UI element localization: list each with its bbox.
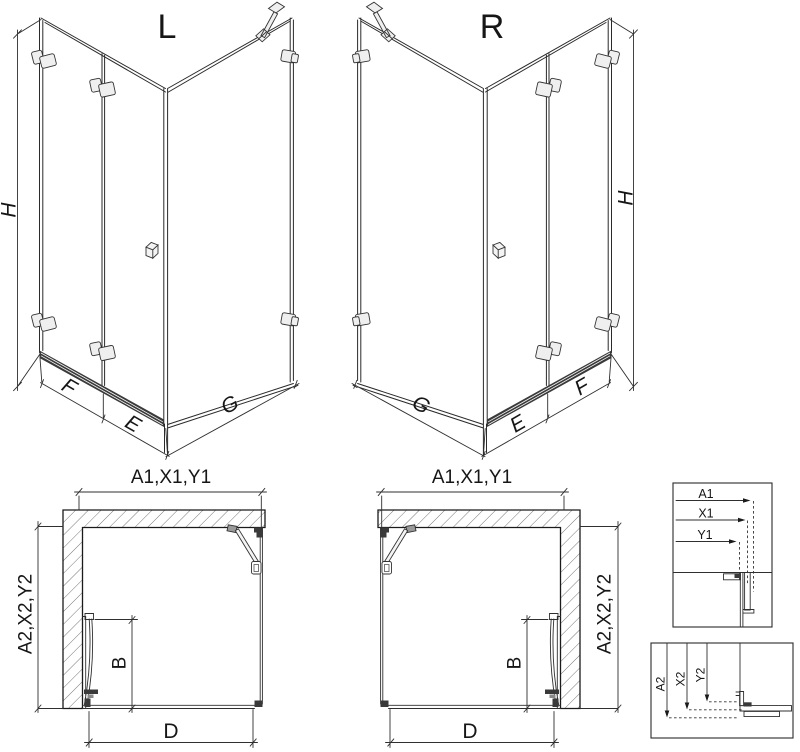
detail-dim-x2: X2 (674, 671, 688, 686)
detail-box-horizontal: A1 X1 Y1 (673, 483, 772, 627)
variant-title-right: R (480, 8, 505, 46)
plan-view-left: A1,X1,Y1 A2,X2,Y2 B D (16, 467, 267, 748)
drawing-page: L H F E G R H F E G (0, 0, 800, 752)
detail-arrow-lines (673, 501, 772, 573)
wall-hatched (63, 510, 265, 709)
wall-hatched (378, 510, 580, 709)
entry-width-label: D (163, 720, 178, 743)
variant-title-left: L (158, 8, 177, 46)
profile-fittings (84, 528, 263, 708)
detail-reference-dotted (669, 702, 744, 718)
detail-clamp (744, 702, 752, 706)
top-dim-label: A1,X1,Y1 (131, 467, 211, 488)
wall-brackets-and-hinges (352, 49, 620, 361)
height-dim-label: H (0, 202, 21, 218)
technical-drawing: L H F E G R H F E G (0, 0, 800, 752)
dimension-lines (352, 20, 638, 460)
detail-dim-y2: Y2 (694, 667, 708, 682)
fixed-panel-dim-label: F (58, 374, 82, 401)
detail-border (673, 483, 772, 627)
glass-lines (381, 528, 561, 709)
side-dim-label: A2,X2,Y2 (16, 574, 37, 654)
detail-dim-a2: A2 (654, 676, 668, 691)
glass-panel-edges (40, 18, 294, 455)
iso-view-right: R H F E G (352, 2, 638, 459)
side-panel-dim-label: G (217, 391, 243, 419)
door-handle-knob (493, 242, 505, 258)
glass-lines (83, 528, 263, 709)
fixed-panel-dim-label: F (571, 373, 595, 400)
detail-border (651, 643, 793, 738)
profile-fittings (380, 528, 559, 708)
door-width-label: B (505, 657, 526, 670)
door-leaf (550, 614, 561, 709)
door-handle-knob (146, 242, 158, 258)
detail-dim-y1: Y1 (697, 528, 712, 542)
side-panel-dim-label: G (408, 391, 434, 419)
top-dim-label: A1,X1,Y1 (432, 467, 512, 488)
side-dim-label: A2,X2,Y2 (595, 574, 616, 654)
detail-dim-a1: A1 (698, 487, 713, 501)
glass-panel-edges (358, 18, 612, 455)
height-dim-label: H (615, 190, 638, 206)
dimension-lines (14, 20, 300, 460)
wall-brackets-and-hinges (31, 49, 299, 360)
detail-box-vertical: A2 X2 Y2 (651, 643, 793, 738)
support-bar (256, 2, 285, 42)
door-leaf (83, 614, 94, 709)
plan-view-right: A1,X1,Y1 A2,X2,Y2 B D (377, 467, 622, 748)
support-bar (367, 2, 396, 42)
detail-profile-section (724, 573, 754, 627)
detail-dim-x1: X1 (698, 506, 713, 520)
entry-width-label: D (462, 720, 477, 743)
detail-reference-dotted (740, 501, 754, 592)
door-width-label: B (110, 657, 131, 670)
detail-clamp (735, 573, 742, 578)
iso-view-left: L H F E G (0, 2, 299, 459)
